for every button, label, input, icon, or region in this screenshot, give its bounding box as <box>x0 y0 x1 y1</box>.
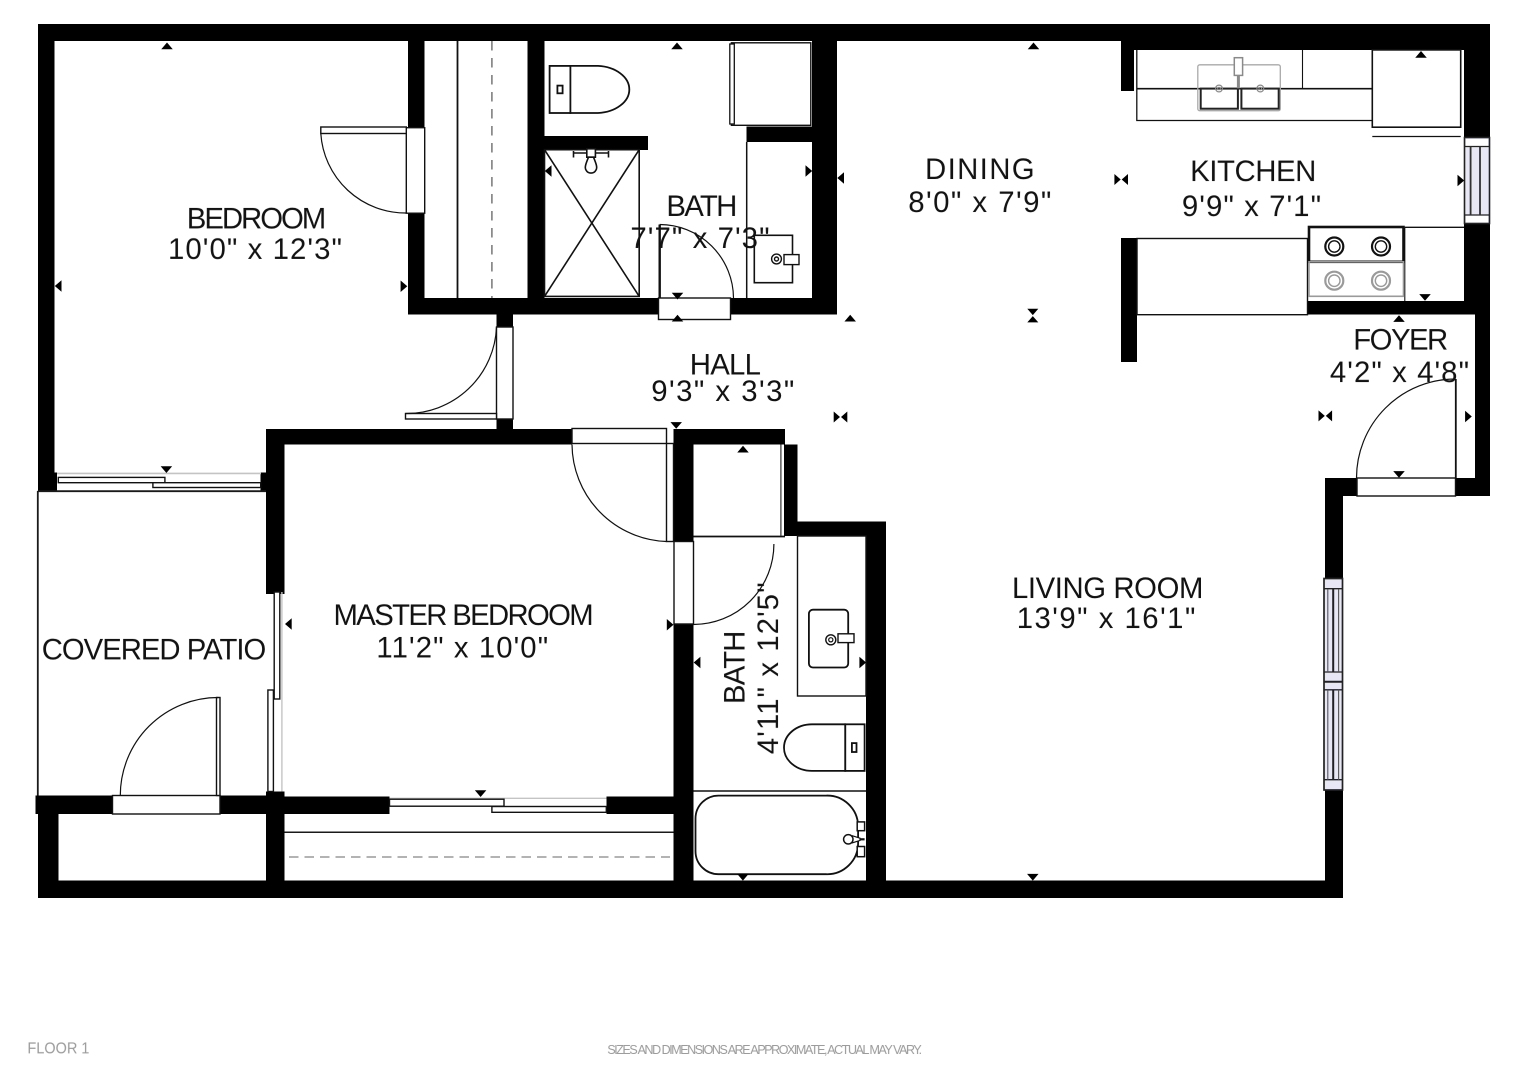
svg-text:4'2" x 4'8": 4'2" x 4'8" <box>1330 356 1470 389</box>
svg-text:MASTER BEDROOM: MASTER BEDROOM <box>334 599 593 632</box>
svg-text:10'0" x 12'3": 10'0" x 12'3" <box>168 233 343 266</box>
svg-text:KITCHEN: KITCHEN <box>1190 155 1316 188</box>
svg-text:BATH: BATH <box>666 190 735 223</box>
svg-text:FOYER: FOYER <box>1353 324 1447 357</box>
svg-text:DINING: DINING <box>925 153 1036 186</box>
svg-text:BEDROOM: BEDROOM <box>187 202 324 235</box>
svg-text:9'9" x 7'1": 9'9" x 7'1" <box>1182 190 1322 223</box>
svg-text:SIZES AND DIMENSIONS ARE APPRO: SIZES AND DIMENSIONS ARE APPROXIMATE, AC… <box>607 1043 922 1057</box>
svg-text:9'3" x 3'3": 9'3" x 3'3" <box>651 375 796 408</box>
svg-text:13'9" x 16'1": 13'9" x 16'1" <box>1017 602 1197 635</box>
svg-text:7'7" x 7'3": 7'7" x 7'3" <box>630 222 770 255</box>
svg-text:8'0" x 7'9": 8'0" x 7'9" <box>908 186 1053 219</box>
svg-text:FLOOR 1: FLOOR 1 <box>27 1040 89 1057</box>
svg-text:4'11" x 12'5": 4'11" x 12'5" <box>752 581 785 754</box>
svg-text:BATH: BATH <box>718 631 751 704</box>
svg-text:LIVING ROOM: LIVING ROOM <box>1012 572 1203 605</box>
svg-text:COVERED PATIO: COVERED PATIO <box>42 633 266 666</box>
svg-text:11'2" x 10'0": 11'2" x 10'0" <box>376 631 549 664</box>
